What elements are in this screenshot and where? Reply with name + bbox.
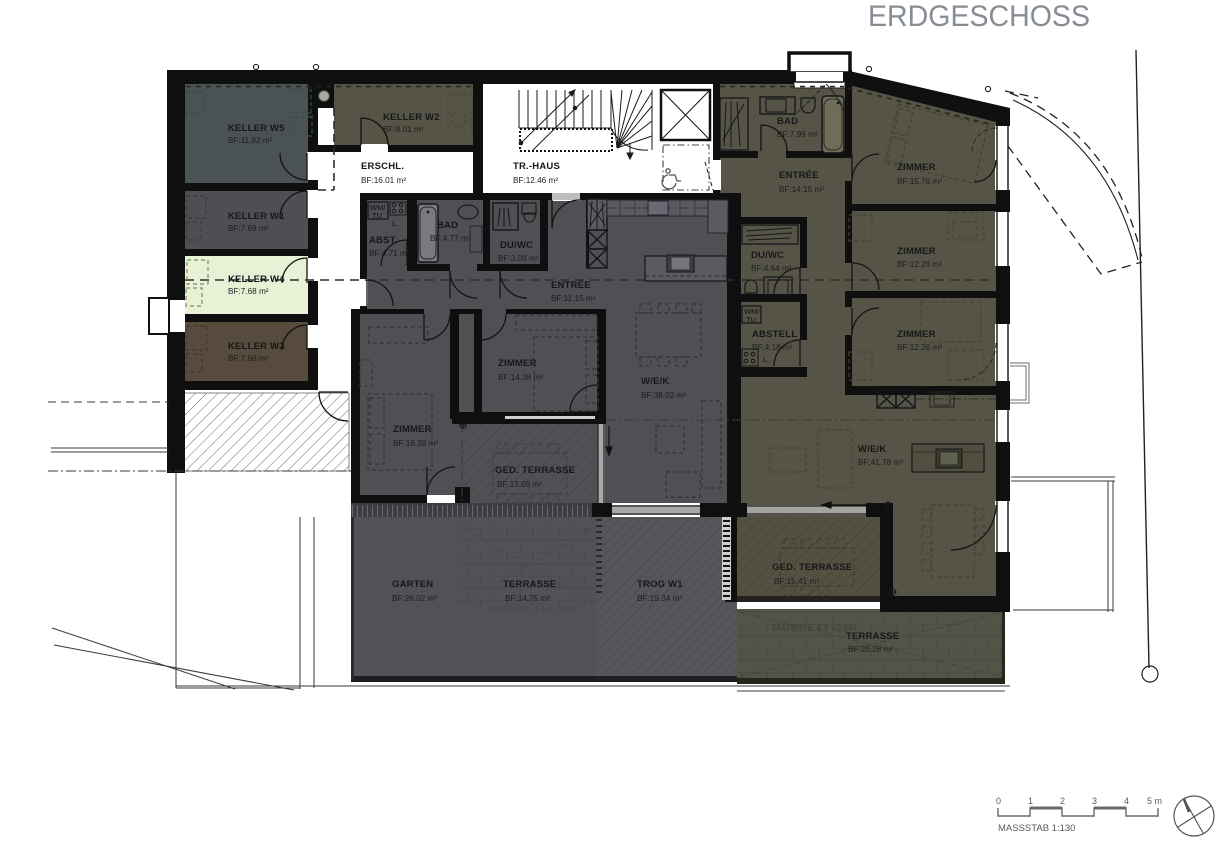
svg-text:BF:7.68 m²: BF:7.68 m² xyxy=(228,354,269,363)
svg-text:BAD: BAD xyxy=(437,220,458,231)
svg-text:BF:7.68 m²: BF:7.68 m² xyxy=(228,224,269,233)
svg-text:ZIMMER: ZIMMER xyxy=(393,424,432,435)
svg-text:BF:14.15 m²: BF:14.15 m² xyxy=(779,185,824,194)
svg-text:BF:11.15 m²: BF:11.15 m² xyxy=(551,294,596,303)
svg-text:ENTRÉE: ENTRÉE xyxy=(779,170,819,181)
svg-text:ENTRÉE: ENTRÉE xyxy=(551,280,591,291)
svg-text:BF:38.03 m²: BF:38.03 m² xyxy=(641,391,686,400)
svg-text:BF:16.38 m²: BF:16.38 m² xyxy=(393,439,438,448)
svg-text:2: 2 xyxy=(1060,796,1065,806)
svg-text:BF:19.34 m²: BF:19.34 m² xyxy=(637,594,682,603)
svg-text:BF:15.41 m²: BF:15.41 m² xyxy=(774,577,819,586)
svg-text:ZIMMER: ZIMMER xyxy=(897,329,936,340)
svg-text:ABSTELL: ABSTELL xyxy=(752,329,797,340)
svg-text:KELLER W1: KELLER W1 xyxy=(228,211,285,222)
svg-text:ZIMMER: ZIMMER xyxy=(897,162,936,173)
svg-text:BF:4.71 m²: BF:4.71 m² xyxy=(369,249,410,258)
svg-text:ERSCHL.: ERSCHL. xyxy=(361,161,404,172)
svg-text:1: 1 xyxy=(1028,796,1033,806)
svg-text:BF:14.38 m²: BF:14.38 m² xyxy=(498,373,543,382)
svg-text:BF:8.01 m²: BF:8.01 m² xyxy=(383,125,424,134)
svg-text:W/E/K: W/E/K xyxy=(858,444,886,455)
svg-text:GED. TERRASSE: GED. TERRASSE xyxy=(772,562,852,573)
svg-text:TU: TU xyxy=(746,315,756,324)
svg-text:W/E/K: W/E/K xyxy=(641,376,669,387)
svg-text:BF:3.08 m²: BF:3.08 m² xyxy=(498,254,539,263)
svg-text:KELLER W5: KELLER W5 xyxy=(228,123,285,134)
svg-text:MASSSTAB 1:130: MASSSTAB 1:130 xyxy=(998,823,1075,834)
svg-text:BF:16.01 m²: BF:16.01 m² xyxy=(361,176,406,185)
svg-text:BF:26.02 m²: BF:26.02 m² xyxy=(392,594,437,603)
svg-text:GARTEN: GARTEN xyxy=(392,579,433,590)
svg-text:TERRASSE: TERRASSE xyxy=(846,631,899,642)
svg-text:BF:13.09 m²: BF:13.09 m² xyxy=(497,480,542,489)
svg-text:MARKISE 4.1 x 2.5M: MARKISE 4.1 x 2.5M xyxy=(489,604,576,614)
svg-text:TU: TU xyxy=(372,211,382,220)
svg-text:BF:12.46 m²: BF:12.46 m² xyxy=(513,176,558,185)
svg-text:BF:12.26 m²: BF:12.26 m² xyxy=(897,343,942,352)
svg-text:5 m: 5 m xyxy=(1147,796,1162,806)
svg-text:BF:14.75 m²: BF:14.75 m² xyxy=(505,594,550,603)
svg-text:L.: L. xyxy=(392,219,398,228)
svg-text:4: 4 xyxy=(1124,796,1129,806)
svg-text:MARKISE 4.9 x2.5M: MARKISE 4.9 x2.5M xyxy=(772,623,857,633)
svg-text:KELLER W2: KELLER W2 xyxy=(383,112,440,123)
svg-text:BF:12.26 m²: BF:12.26 m² xyxy=(897,260,942,269)
svg-text:TERRASSE: TERRASSE xyxy=(503,579,556,590)
svg-text:ZIMMER: ZIMMER xyxy=(498,358,537,369)
svg-text:ZIMMER: ZIMMER xyxy=(897,246,936,257)
svg-text:BF:4.77 m²: BF:4.77 m² xyxy=(430,234,471,243)
svg-text:3: 3 xyxy=(1092,796,1097,806)
svg-text:GED. TERRASSE: GED. TERRASSE xyxy=(495,465,575,476)
svg-text:KELLER W4: KELLER W4 xyxy=(228,274,285,285)
svg-text:DU/WC: DU/WC xyxy=(500,240,533,251)
svg-text:BF:11.82 m²: BF:11.82 m² xyxy=(228,136,273,145)
svg-text:BF:15.76 m²: BF:15.76 m² xyxy=(897,177,942,186)
svg-text:DU/WC: DU/WC xyxy=(751,250,784,261)
svg-text:TROG W1: TROG W1 xyxy=(637,579,683,590)
svg-text:KELLER W3: KELLER W3 xyxy=(228,341,285,352)
svg-text:0: 0 xyxy=(996,796,1001,806)
svg-text:L.: L. xyxy=(763,355,769,364)
svg-text:BAD: BAD xyxy=(777,116,798,127)
svg-text:BF:41.78 m²: BF:41.78 m² xyxy=(858,458,903,467)
svg-text:ERDGESCHOSS: ERDGESCHOSS xyxy=(868,0,1090,33)
svg-text:BF:20.28 m²: BF:20.28 m² xyxy=(848,645,893,654)
svg-text:BF:7.68 m²: BF:7.68 m² xyxy=(228,287,269,296)
svg-text:TR.-HAUS: TR.-HAUS xyxy=(513,161,560,172)
